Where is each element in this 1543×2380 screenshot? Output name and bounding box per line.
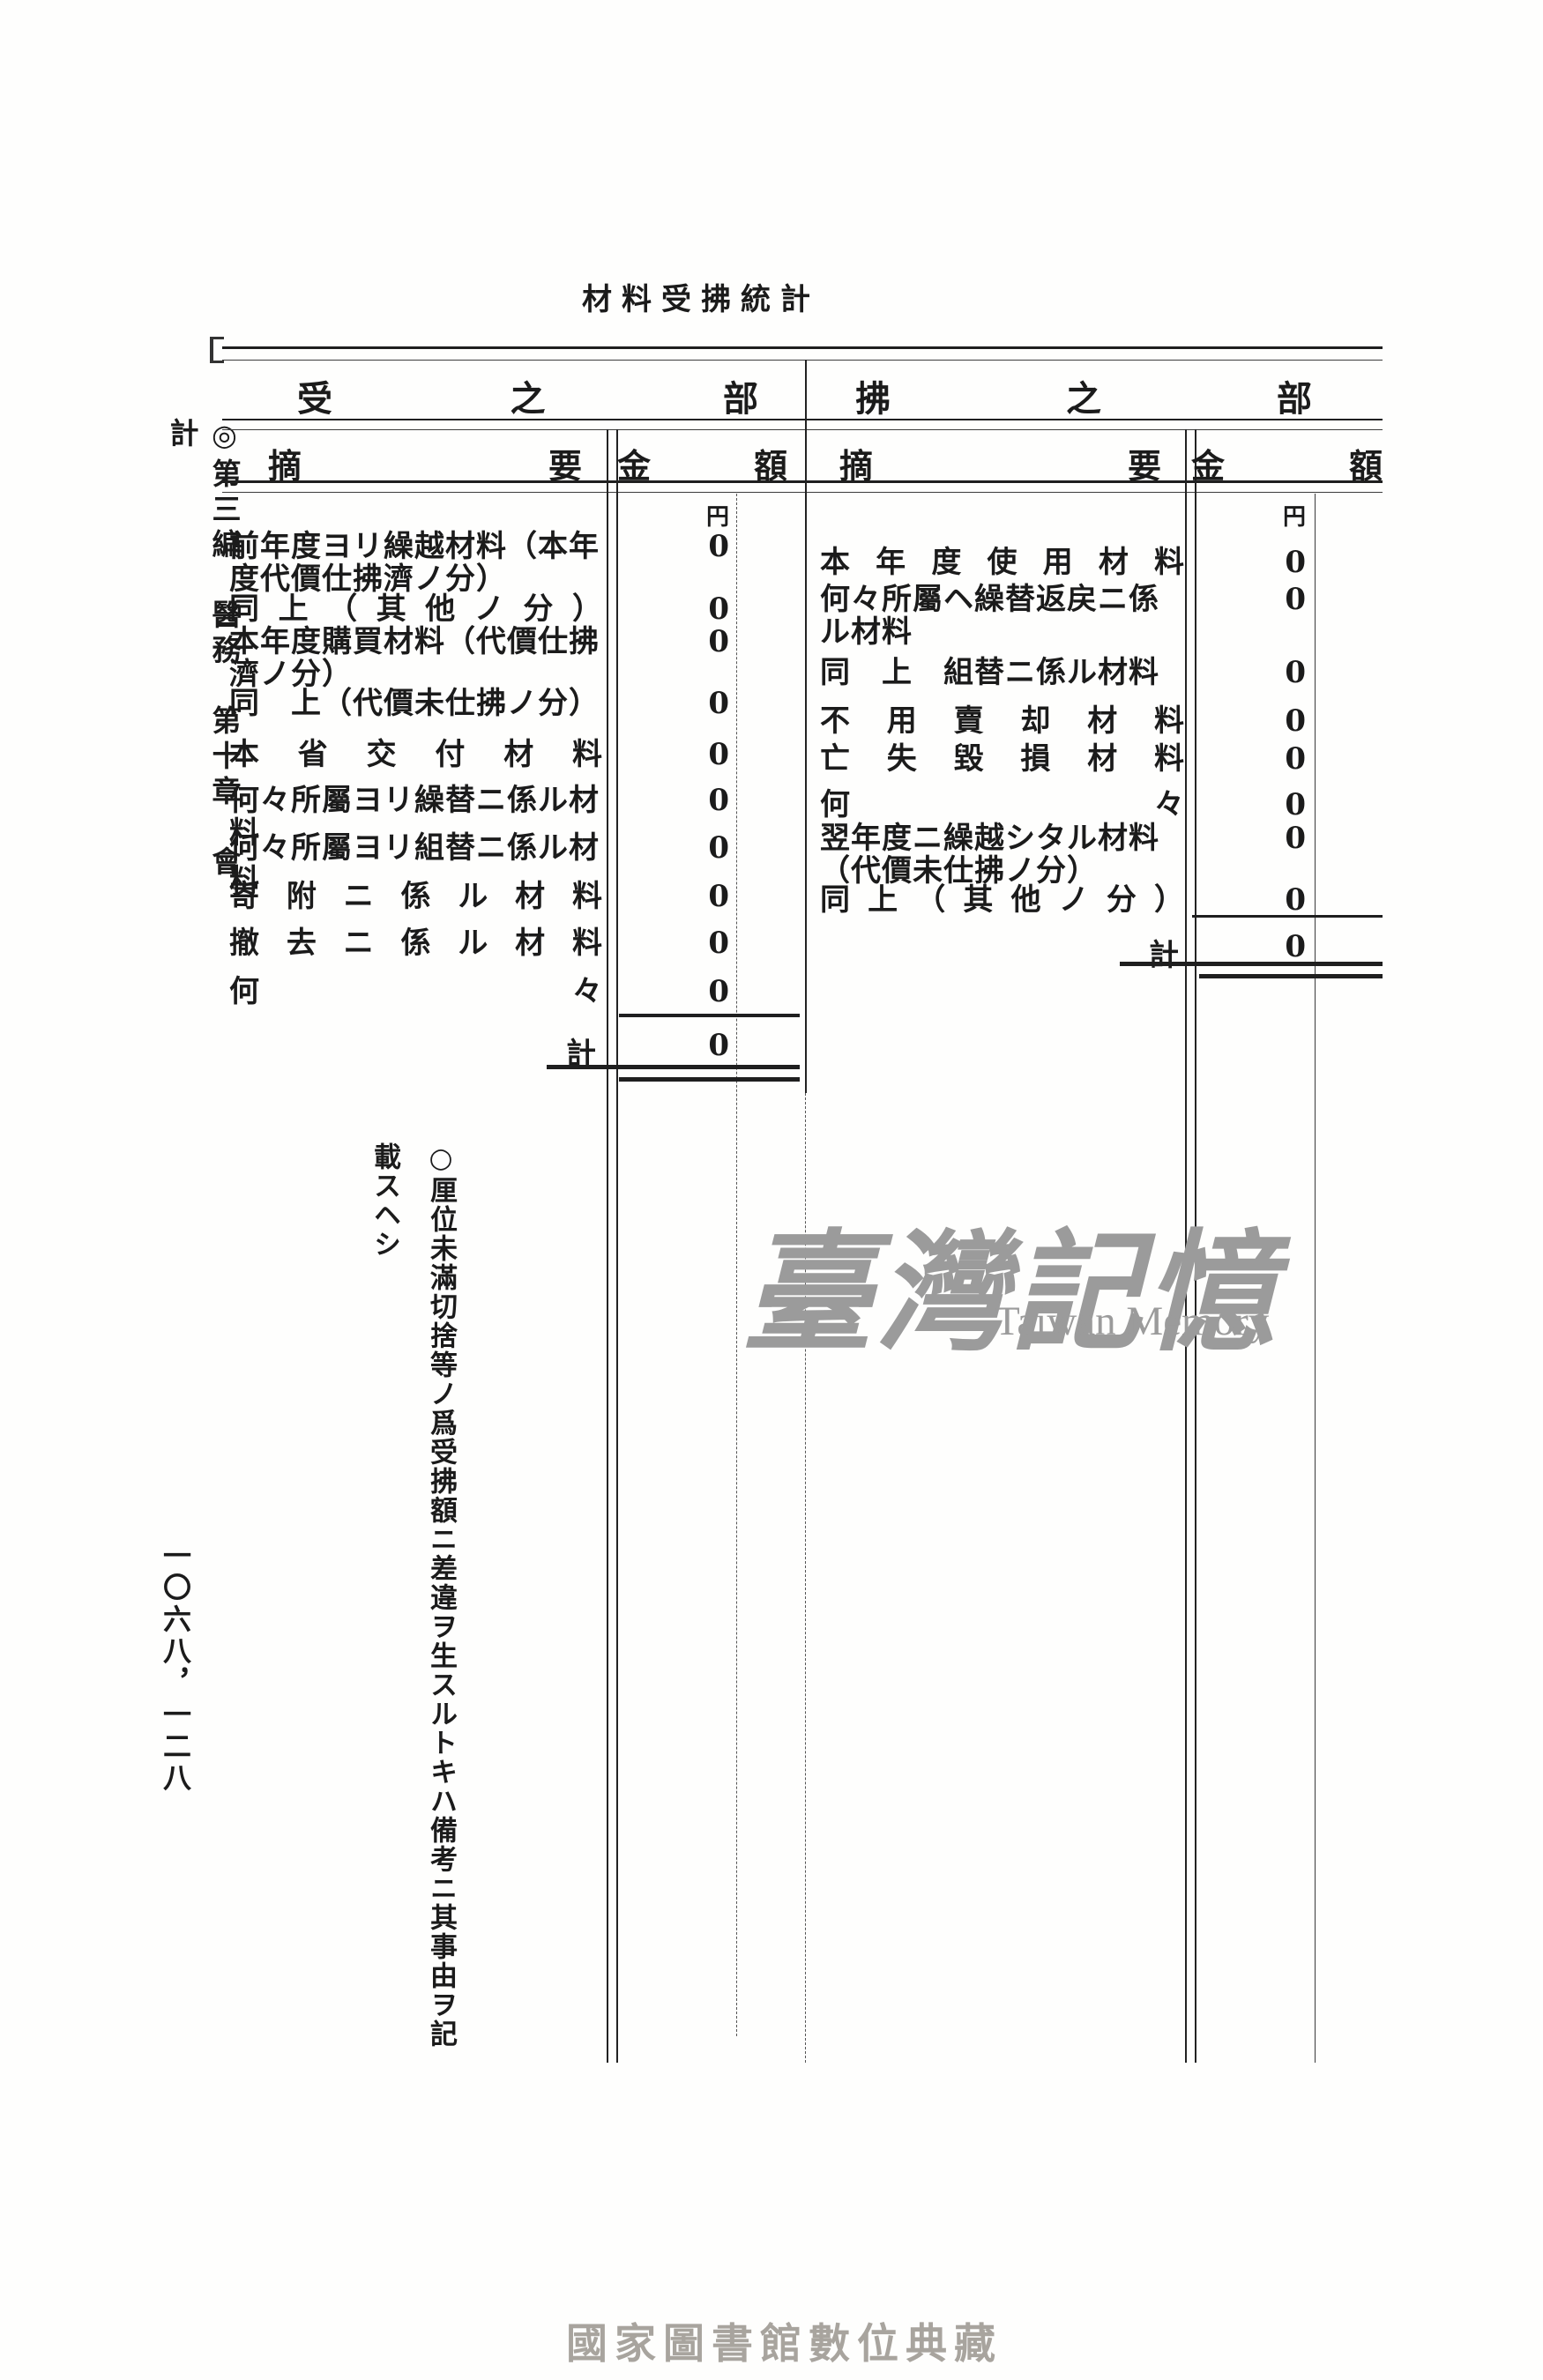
left-total-top-rule xyxy=(619,1014,800,1017)
right-total-top-rule xyxy=(1192,915,1383,918)
table-row-label: 同 上（代價未仕拂ノ分） xyxy=(229,688,603,720)
receipts-section-body: 前年度ヨリ繰越材料（本年度代價仕拂濟ノ分）0同上（其他ノ分）0本年度購買材料（代… xyxy=(222,494,807,1199)
total-label: 計 xyxy=(807,931,1179,974)
table-top-rule xyxy=(222,346,1383,349)
table-row-amount: 0 xyxy=(608,688,729,720)
table-top-rule-2 xyxy=(222,360,1383,361)
left-total-bottom-rule-b xyxy=(619,1077,800,1082)
table-row-amount: 0 xyxy=(608,881,729,913)
table-row-label: 何々 xyxy=(820,789,1185,822)
table-row-amount: 0 xyxy=(608,626,729,658)
header-divider-rule-2 xyxy=(222,429,1383,430)
table-row-label: 翌年度ニ繰越シタル材料（代價未仕拂ノ分） xyxy=(820,822,1185,888)
table-row-amount: 0 xyxy=(1185,705,1306,738)
table-row-label: 本省交付材料 xyxy=(229,739,603,771)
document-title: 材料受拂統計 xyxy=(423,275,979,318)
table-row-label: 本年度購買材料（代價仕拂濟ノ分） xyxy=(229,626,603,691)
table-row-label: 不用賣却材料 xyxy=(820,705,1185,738)
total-amount: 0 xyxy=(608,1030,729,1062)
section-title-payments: 拂之部 xyxy=(807,370,1383,416)
table-row-amount: 0 xyxy=(1185,657,1306,689)
table-row-label: 同上（其他ノ分） xyxy=(229,593,603,626)
table-row-amount: 0 xyxy=(1185,584,1306,616)
table-row-amount: 0 xyxy=(608,593,729,626)
page-numbers: 一〇六八，一二八 xyxy=(155,1541,196,1823)
left-total-bottom-rule-a xyxy=(547,1065,800,1069)
table-row-amount: 0 xyxy=(1185,789,1306,822)
table-row-label: 何々 xyxy=(229,976,603,1008)
total-label: 計 xyxy=(222,1030,596,1073)
table-row-amount: 0 xyxy=(608,832,729,865)
table-row-amount: 0 xyxy=(608,976,729,1008)
table-row-amount: 0 xyxy=(608,785,729,817)
right-total-bottom-rule-a xyxy=(1120,962,1383,966)
table-row-label: 前年度ヨリ繰越材料（本年度代價仕拂濟ノ分） xyxy=(229,531,603,596)
rounding-footnote: ○厘位未滿切捨等ノ爲受拂額ニ差違ヲ生スルトキハ備考ニ其事由ヲ記載スヘシ xyxy=(349,1142,469,2052)
table-row-amount: 0 xyxy=(608,531,729,563)
column-header-amount-left: 金額 xyxy=(608,439,807,481)
table-row-label: 撤去ニ係ル材料 xyxy=(229,927,603,960)
table-row-label: 寄附ニ係ル材料 xyxy=(229,881,603,913)
table-row-amount: 0 xyxy=(1185,822,1306,855)
header-bottom-rule-2 xyxy=(222,492,1383,493)
table-row-amount: 0 xyxy=(608,927,729,960)
library-footer-caption: 國家圖書館數位典藏 xyxy=(566,2309,1003,2370)
taiwan-memory-watermark-cjk: 臺灣記憶 xyxy=(742,1186,1278,1376)
right-total-bottom-rule-b xyxy=(1199,974,1383,978)
payments-section-body: 本年度使用材料0何々所屬ヘ繰替返戻ニ係ル材料0同 上 組替ニ係ル材料0不用賣却材… xyxy=(807,494,1383,1199)
table-row-amount: 0 xyxy=(1185,884,1306,917)
column-header-summary-right: 摘要 xyxy=(807,439,1185,481)
table-row-amount: 0 xyxy=(608,739,729,771)
table-row-label: 本年度使用材料 xyxy=(820,547,1185,579)
table-row-amount: 0 xyxy=(1185,547,1306,579)
total-amount: 0 xyxy=(1185,931,1306,963)
table-row-label: 亡失毀損材料 xyxy=(820,743,1185,776)
table-row-amount: 0 xyxy=(1185,743,1306,776)
section-title-receipts: 受之部 xyxy=(222,370,807,416)
table-row-label: 何々所屬ヘ繰替返戻ニ係ル材料 xyxy=(820,584,1185,649)
table-row-label: 同 上 組替ニ係ル材料 xyxy=(820,657,1185,689)
column-header-summary-left: 摘要 xyxy=(222,439,608,481)
column-header-amount-right: 金額 xyxy=(1185,439,1383,481)
table-row-label: 同上（其他ノ分） xyxy=(820,884,1185,917)
taiwan-memory-watermark-latin: Taiwan Memory xyxy=(995,1298,1269,1345)
